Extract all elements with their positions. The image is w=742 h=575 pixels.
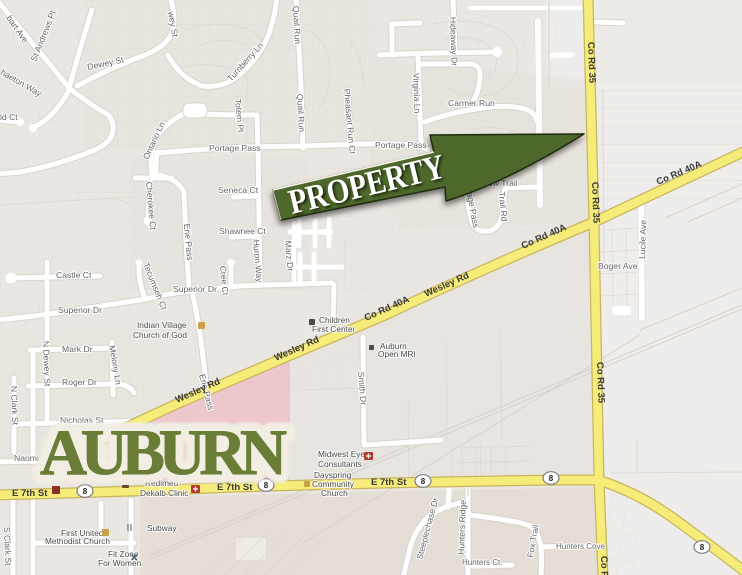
svg-text:Open MRI: Open MRI [378, 349, 416, 359]
svg-text:Hunters Ridge: Hunters Ridge [456, 500, 468, 555]
svg-text:Co Rd 35: Co Rd 35 [589, 182, 601, 224]
svg-text:Co Rd 35: Co Rd 35 [585, 42, 597, 84]
svg-text:Subway: Subway [147, 523, 177, 533]
svg-text:Hideaway Dr: Hideaway Dr [448, 17, 460, 67]
svg-text:N Clark St: N Clark St [9, 386, 20, 426]
svg-text:Consultants: Consultants [318, 459, 362, 469]
svg-text:8: 8 [421, 477, 426, 486]
svg-text:Carmer Run: Carmer Run [448, 98, 495, 108]
svg-text:✕: ✕ [130, 553, 138, 564]
svg-text:Quail Run: Quail Run [291, 6, 303, 45]
svg-text:Naomi: Naomi [14, 453, 39, 463]
svg-text:Castle Ct: Castle Ct [56, 270, 92, 280]
svg-text:Roger Dr: Roger Dr [62, 377, 97, 387]
svg-text:Superior Dr: Superior Dr [58, 305, 102, 315]
svg-text:Lucile Ave: Lucile Ave [637, 220, 648, 260]
svg-text:Co Rd: Co Rd [598, 556, 610, 575]
svg-text:AUBURN: AUBURN [40, 417, 287, 489]
svg-text:First Center: First Center [312, 324, 356, 334]
svg-text:8: 8 [700, 543, 705, 552]
svg-text:Indian Village: Indian Village [137, 320, 187, 330]
svg-text:Shawnee Ct: Shawnee Ct [219, 226, 266, 236]
svg-text:Mark Dr: Mark Dr [62, 344, 93, 354]
svg-text:Church of God: Church of God [133, 330, 187, 340]
svg-text:Seneca Ct: Seneca Ct [218, 185, 259, 195]
svg-text:Portage Pass: Portage Pass [209, 143, 261, 153]
svg-text:Church: Church [321, 488, 348, 498]
svg-text:ld Ct: ld Ct [0, 112, 18, 122]
svg-text:Hunters Ct.: Hunters Ct. [462, 558, 502, 567]
svg-text:Co Rd 35: Co Rd 35 [594, 362, 606, 404]
svg-text:S Clark St: S Clark St [2, 527, 13, 567]
svg-text:Superior Dr: Superior Dr [173, 284, 217, 294]
svg-text:Virginia Ln: Virginia Ln [411, 73, 422, 114]
svg-text:Quail Run: Quail Run [295, 94, 307, 133]
svg-text:E 7th St: E 7th St [371, 477, 407, 488]
svg-text:Midwest Eye: Midwest Eye [318, 449, 365, 459]
svg-text:Portage Pass: Portage Pass [375, 140, 427, 150]
svg-text:8: 8 [549, 474, 554, 483]
svg-text:N Dewey St: N Dewey St [41, 341, 53, 387]
svg-text:Methodist Church: Methodist Church [45, 536, 110, 546]
svg-text:Boger Ave: Boger Ave [598, 261, 638, 271]
svg-text:Hunters Cove: Hunters Cove [556, 542, 605, 551]
svg-text:Dekalb Clinic: Dekalb Clinic [140, 488, 188, 498]
svg-text:E 7th St: E 7th St [12, 488, 48, 499]
